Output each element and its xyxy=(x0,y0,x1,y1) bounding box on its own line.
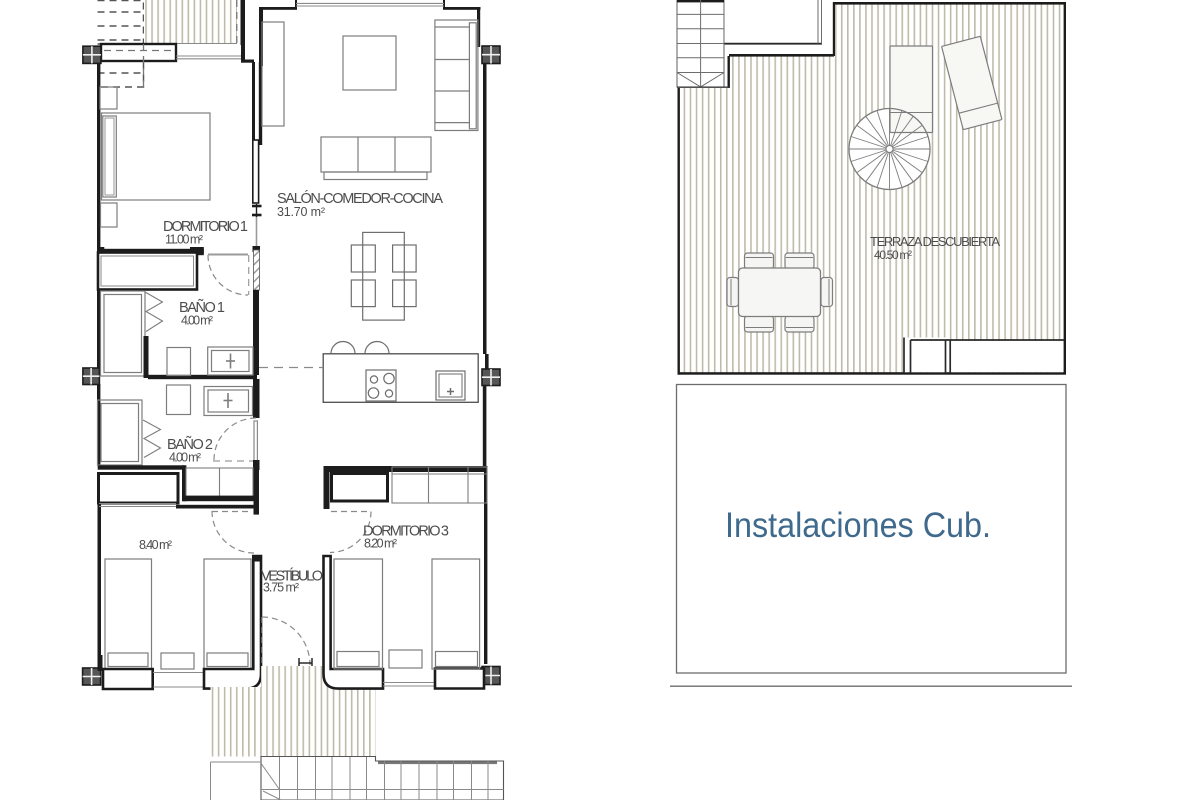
svg-text:31.70 m²: 31.70 m² xyxy=(277,205,325,219)
svg-text:Instalaciones Cub.: Instalaciones Cub. xyxy=(725,505,991,545)
svg-text:8.40 m²: 8.40 m² xyxy=(139,538,172,552)
svg-text:TERRAZA DESCUBIERTA: TERRAZA DESCUBIERTA xyxy=(870,234,1000,249)
svg-text:4.00 m²: 4.00 m² xyxy=(169,451,201,465)
svg-text:40.50 m²: 40.50 m² xyxy=(874,248,912,262)
svg-text:8.20 m²: 8.20 m² xyxy=(364,537,397,551)
svg-text:4.00 m²: 4.00 m² xyxy=(181,314,213,328)
svg-text:3.75 m²: 3.75 m² xyxy=(263,581,299,595)
svg-text:11.00 m²: 11.00 m² xyxy=(165,233,203,247)
